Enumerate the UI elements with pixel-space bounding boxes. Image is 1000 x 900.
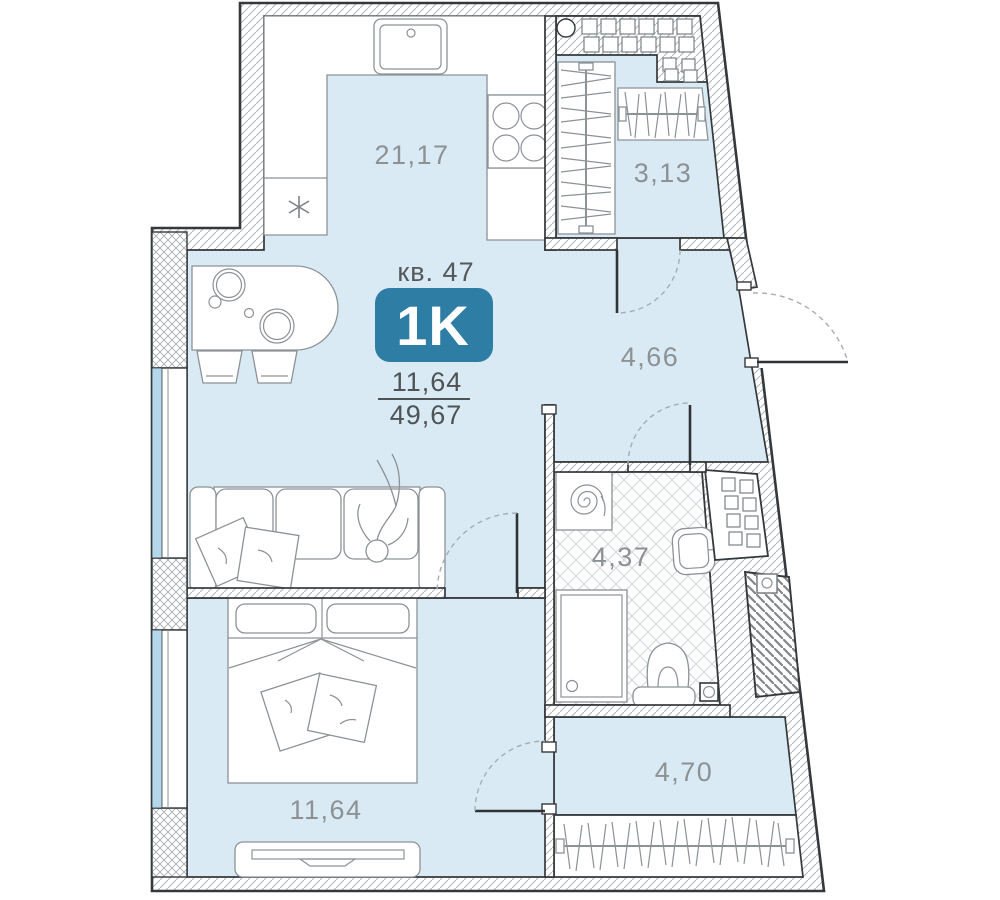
kitchen-living-area-label: 21,17 <box>374 140 449 170</box>
wardrobe-rail-horizontal <box>618 88 708 140</box>
living-area-value: 11,64 <box>392 367 463 397</box>
bedroom-area-label: 11,64 <box>289 795 362 825</box>
wardrobe-rail-vertical <box>558 62 615 234</box>
stove-symbol <box>488 95 547 168</box>
floor-drain <box>700 683 718 701</box>
total-area-value: 49,67 <box>390 400 463 430</box>
double-bed <box>228 598 417 783</box>
type-badge-label: 1K <box>396 294 470 357</box>
wardrobe-area-label: 3,13 <box>634 158 693 188</box>
shower-tray <box>556 590 627 702</box>
living-room-window <box>152 368 187 558</box>
floor-plan-canvas: 21,17 3,13 4,66 4,37 4,70 11,64 кв. 47 1… <box>0 0 1000 900</box>
tv-stand <box>235 842 420 877</box>
closet-area-label: 4,70 <box>655 757 714 787</box>
washing-machine-symbol <box>556 472 612 530</box>
floor-plan: 21,17 3,13 4,66 4,37 4,70 11,64 кв. 47 1… <box>0 0 1000 900</box>
bathroom-area-label: 4,37 <box>592 542 651 572</box>
hallway-area-label: 4,66 <box>621 342 680 372</box>
apartment-number-label: кв. 47 <box>397 257 474 287</box>
vent-shaft <box>705 470 768 560</box>
bedroom-window <box>152 630 187 808</box>
closet-rail <box>554 815 803 877</box>
kitchen-sink-symbol <box>374 19 447 74</box>
dining-table <box>192 266 338 350</box>
